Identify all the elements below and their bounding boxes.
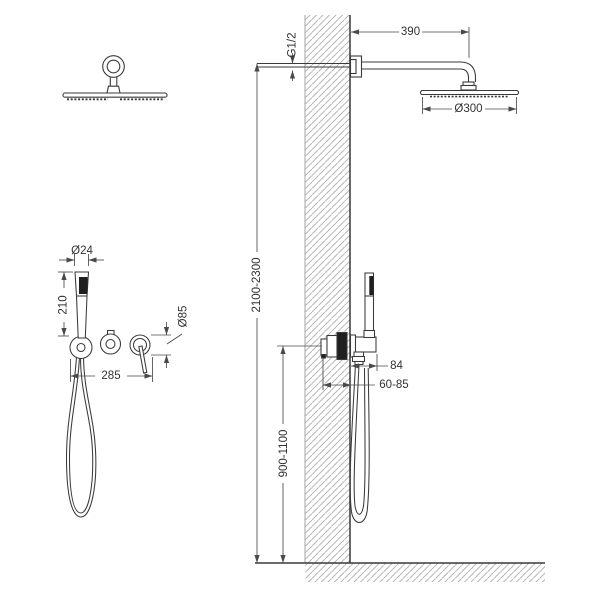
front-view-overhead-shower xyxy=(63,56,167,100)
arrowhead xyxy=(89,257,97,262)
label-handshower-length: 210 xyxy=(58,295,70,314)
shower-head-front xyxy=(63,93,167,97)
dimensions xyxy=(58,27,517,563)
head-connector-front xyxy=(107,86,120,93)
valve-dark-ring xyxy=(337,333,347,360)
installation-diagram: 390 G1/2 Ø300 2100-2300 900-1100 84 60-8… xyxy=(0,0,600,600)
wall-flange-front xyxy=(103,56,125,78)
wall-flange-inner xyxy=(351,60,357,74)
arrowhead xyxy=(164,327,169,335)
arrowhead xyxy=(461,29,469,34)
hand-shower-sprayface-front xyxy=(79,277,88,294)
wall-hatch xyxy=(305,15,350,563)
arrowhead xyxy=(369,363,377,368)
valve-body-inwall xyxy=(327,336,337,358)
label-valve-depth: 60-85 xyxy=(379,379,408,391)
dim-trim-diameter xyxy=(151,322,182,368)
arrowhead xyxy=(61,328,66,336)
front-view-trim-set xyxy=(67,272,151,517)
arrowhead xyxy=(280,346,285,354)
hand-shower-sprayface-side xyxy=(369,276,373,295)
arrowhead xyxy=(61,272,66,280)
valve-stem-rear xyxy=(321,339,327,355)
diagram-svg: 390 G1/2 Ø300 2100-2300 900-1100 84 60-8… xyxy=(0,0,600,600)
hose-coupling-nut xyxy=(353,357,365,362)
head-connector-nut xyxy=(461,86,476,91)
wall-section xyxy=(255,15,545,582)
shower-head-side xyxy=(420,91,518,95)
holder-cup-side xyxy=(364,331,375,338)
arrowhead xyxy=(509,106,517,111)
label-head-diameter: Ø300 xyxy=(454,103,482,115)
holder-hub xyxy=(77,344,85,352)
label-holder-projection: 84 xyxy=(390,360,403,372)
hose-coupling-top xyxy=(354,352,364,357)
valve-stem-foot xyxy=(322,355,326,359)
side-view-overhead-shower xyxy=(257,56,519,97)
arrowhead xyxy=(280,555,285,563)
hose-loop-front-inner xyxy=(70,357,93,513)
arrowhead xyxy=(351,29,359,34)
arrowhead xyxy=(164,355,169,363)
label-overall-height: 2100-2300 xyxy=(251,258,263,313)
floor-hatch xyxy=(305,563,545,582)
label-handshower-diameter: Ø24 xyxy=(71,245,93,257)
arrowhead xyxy=(423,106,431,111)
label-arm-length: 390 xyxy=(401,26,420,38)
arrowhead xyxy=(145,373,153,378)
label-mixer-height: 900-1100 xyxy=(278,430,290,478)
arrowhead xyxy=(254,555,259,563)
handshower-holder-side xyxy=(356,337,377,352)
hose-loop-side-inner xyxy=(354,364,365,514)
arrowhead xyxy=(290,71,295,79)
arm-elbow-inner xyxy=(461,69,469,82)
hose-loop-side-outer xyxy=(350,364,369,523)
arrowhead xyxy=(67,257,75,262)
leader-line xyxy=(167,334,182,344)
label-trim-diameter: Ø85 xyxy=(178,306,190,328)
label-thread: G1/2 xyxy=(287,33,299,58)
diverter-trim xyxy=(101,334,121,354)
label-trim-spacing: 285 xyxy=(101,370,120,382)
